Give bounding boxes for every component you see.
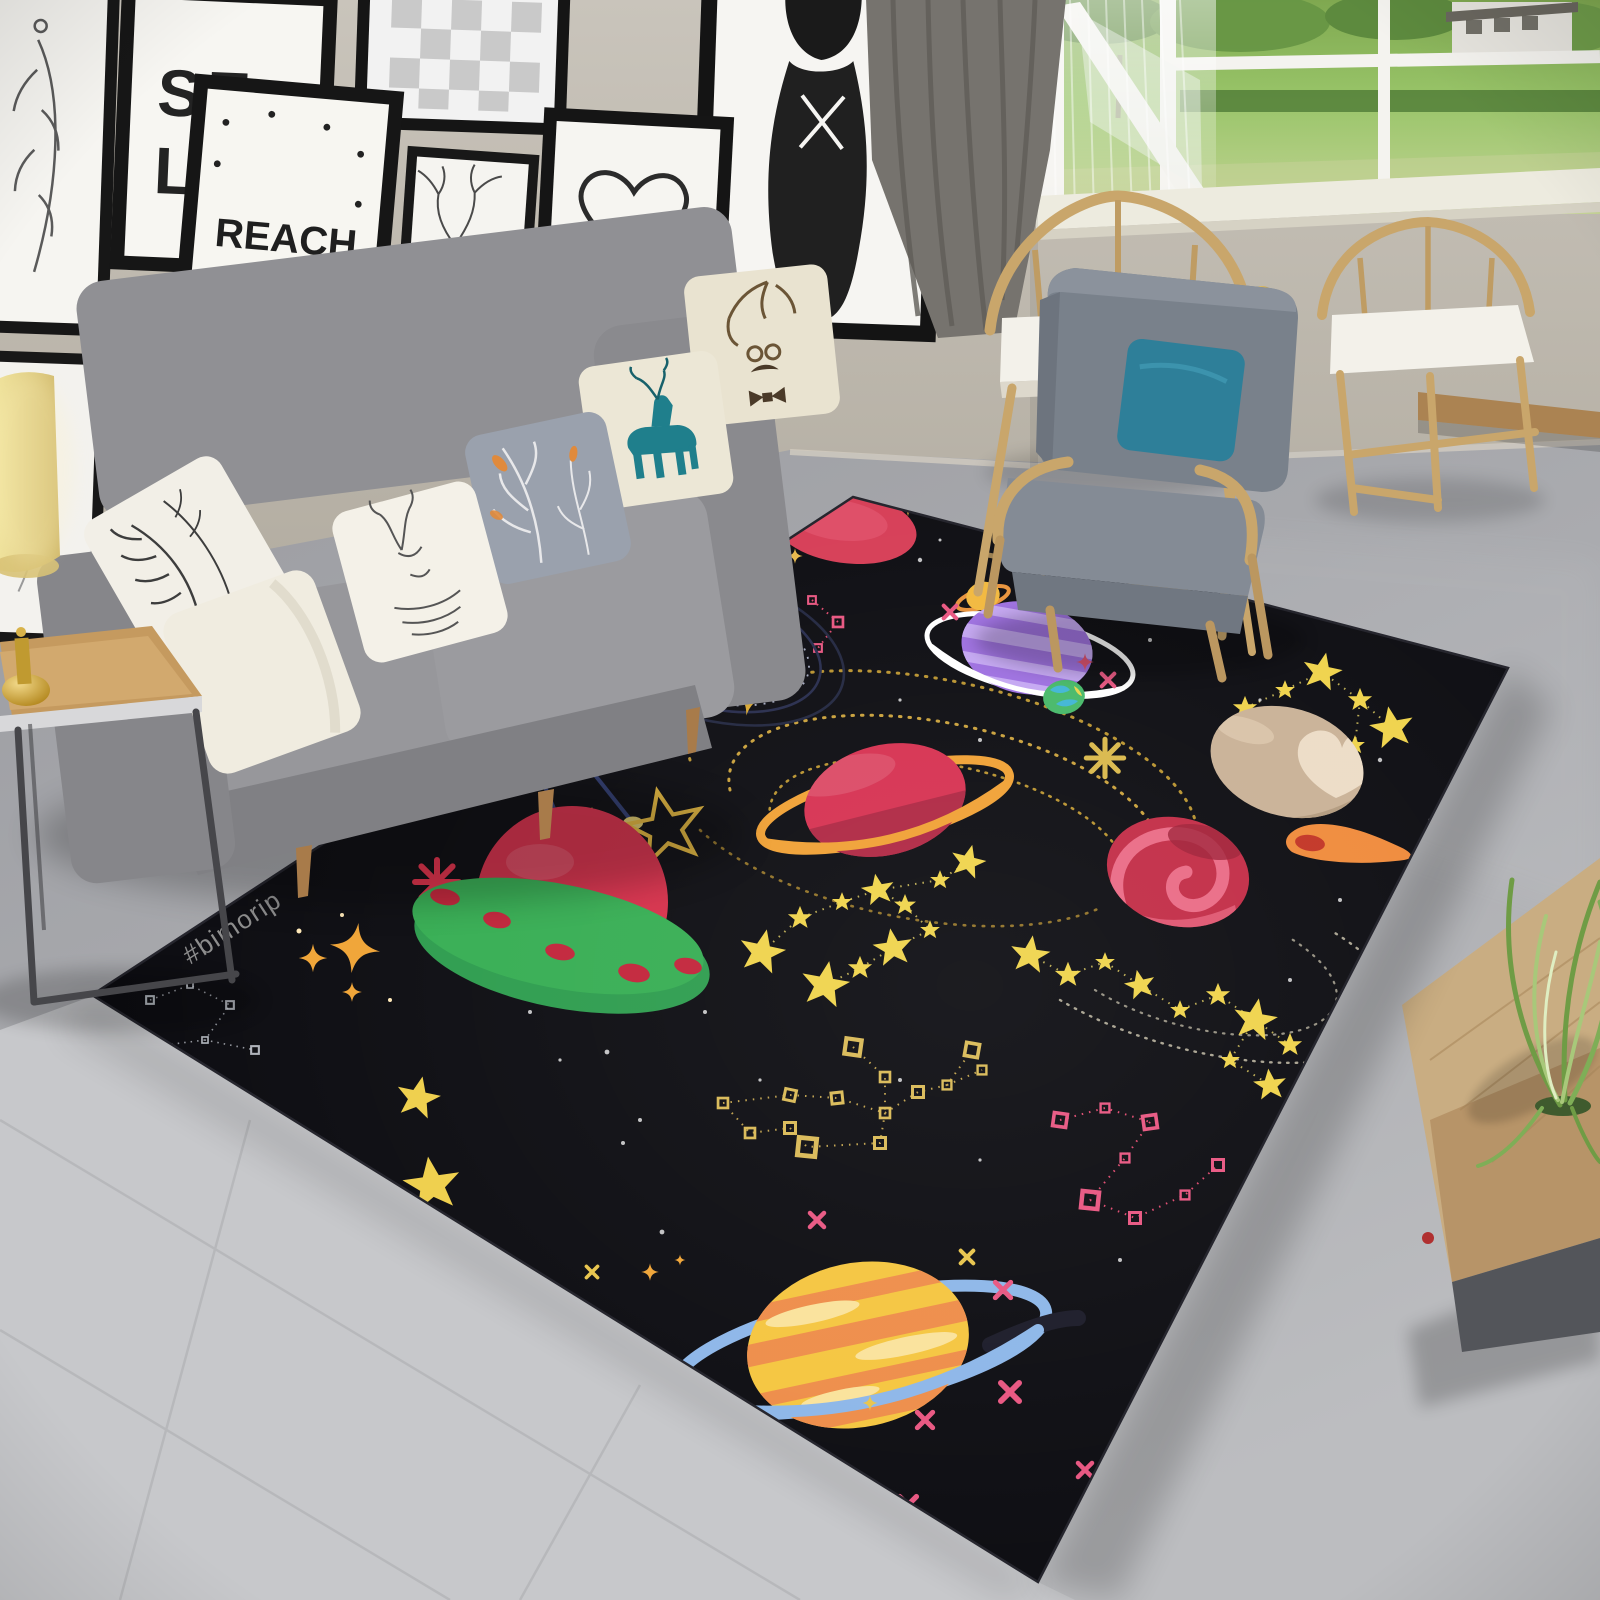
living-room-scene: SE LF bbox=[0, 0, 1600, 1600]
